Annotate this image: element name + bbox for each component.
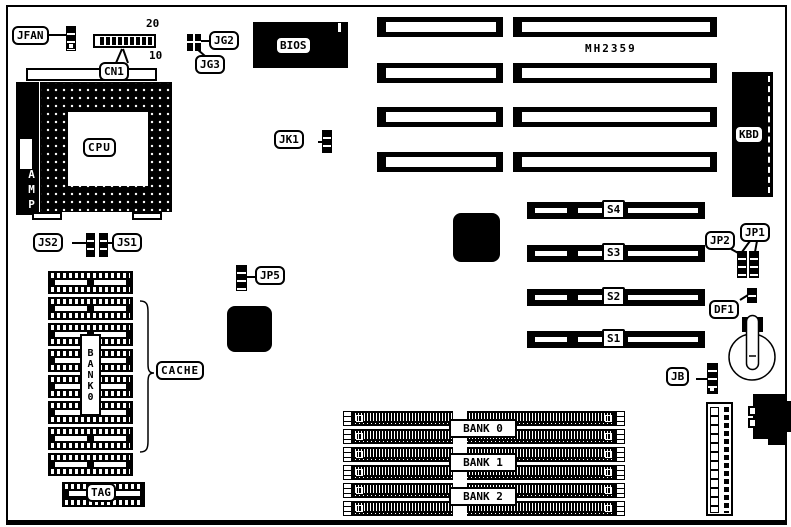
label-s2: S2 [602,287,625,306]
label-s4: S4 [602,200,625,219]
pointer-lines [49,35,757,379]
motherboard-diagram: AMP BANK0 [0,0,791,527]
cache-brace [140,301,154,452]
label-s3: S3 [602,243,625,262]
label-bank2: BANK 2 [449,487,517,506]
label-cn1: CN1 [99,62,129,81]
label-jg3: JG3 [195,55,225,74]
label-cn1-pin20: 20 [146,17,159,30]
label-df1: DF1 [709,300,739,319]
label-jg2: JG2 [209,31,239,50]
label-js1: JS1 [112,233,142,252]
label-jp1: JP1 [740,223,770,242]
label-cpu: CPU [83,138,116,157]
battery [729,316,775,381]
label-kbd: KBD [734,125,764,144]
label-cache: CACHE [156,361,204,380]
label-tag: TAG [86,483,116,502]
label-bank1: BANK 1 [449,453,517,472]
cache-bank0-label-box: BANK0 [80,334,101,416]
label-jfan: JFAN [12,26,49,45]
label-bios: BIOS [275,36,312,55]
label-js2: JS2 [33,233,63,252]
label-jb: JB [666,367,689,386]
label-board-model: MH2359 [585,42,637,55]
label-bank0: BANK 0 [449,419,517,438]
label-jk1: JK1 [274,130,304,149]
label-cn1-pin10: 10 [149,49,162,62]
label-s1: S1 [602,329,625,348]
label-jp5: JP5 [255,266,285,285]
label-jp2: JP2 [705,231,735,250]
